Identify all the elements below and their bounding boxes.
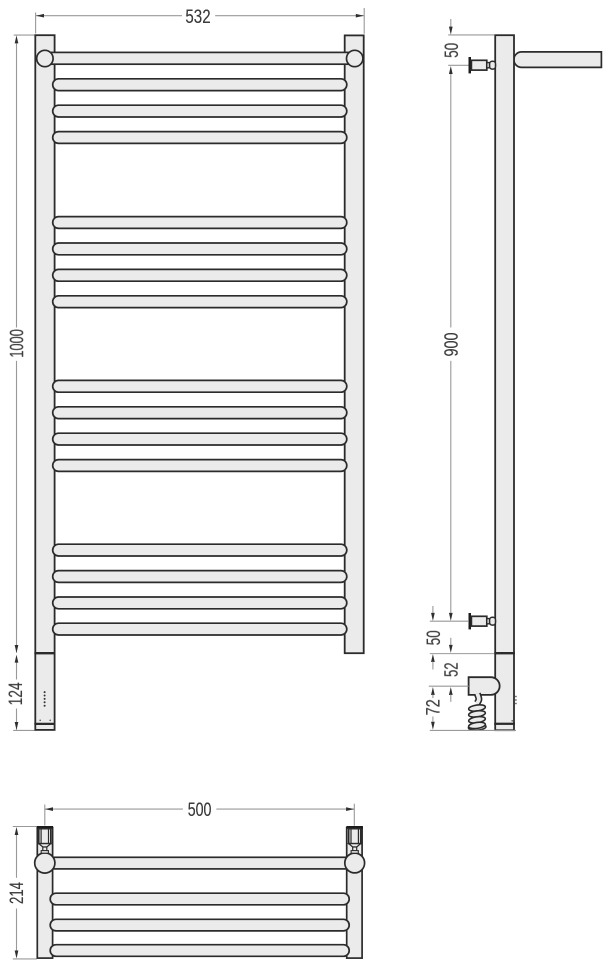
svg-text:532: 532 <box>185 7 210 28</box>
svg-text:900: 900 <box>442 332 463 356</box>
svg-text:500: 500 <box>188 800 212 821</box>
svg-text:52: 52 <box>442 662 463 677</box>
svg-text:1000: 1000 <box>7 329 28 358</box>
svg-text:50: 50 <box>424 630 445 645</box>
svg-text:214: 214 <box>7 882 28 904</box>
svg-text:50: 50 <box>442 43 463 58</box>
svg-text:124: 124 <box>6 682 27 705</box>
svg-text:72: 72 <box>424 699 445 715</box>
